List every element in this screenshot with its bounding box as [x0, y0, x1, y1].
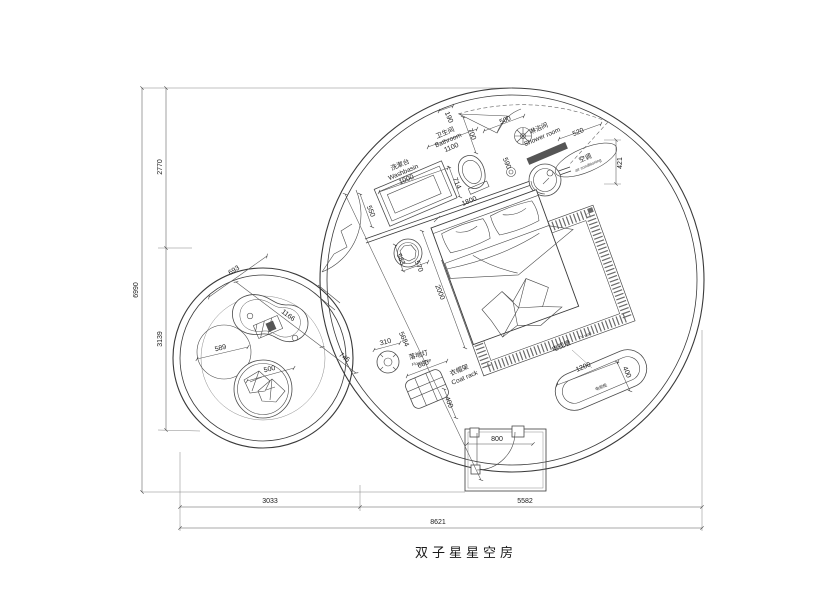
dim-round-rug: 589 [214, 344, 227, 354]
dim-width-left: 3033 [262, 498, 278, 505]
dim-overall-width: 8621 [430, 519, 446, 526]
floor-lamp [377, 351, 399, 373]
coat-rack-label: 衣帽架 Coat rack [446, 359, 479, 387]
bathroom-label: 卫生间 Bathroom 1100 [430, 123, 466, 157]
dim-bed-length: 2000 [433, 284, 445, 301]
toilet [454, 151, 491, 195]
dim-rack-depth: 400 [443, 396, 454, 410]
coat-rack [404, 368, 451, 410]
kidney-table [232, 295, 308, 342]
dim-ac-depth: 421 [617, 157, 624, 169]
floor-plan-page: 电视柜 [0, 0, 837, 592]
dim-bath-offset: 190 [443, 111, 454, 125]
dim-drain: 590 [501, 157, 512, 171]
drawing-title: 双子星星空房 [415, 545, 517, 560]
dim-shower-width: 500 [499, 115, 513, 126]
lounge-room [173, 268, 353, 448]
dim-height-upper: 2770 [157, 159, 164, 175]
dim-overall-height: 6990 [133, 282, 140, 298]
dim-stool-b: 570 [413, 260, 424, 274]
shower-partition [526, 142, 567, 165]
dim-ac-width: 520 [572, 127, 586, 138]
dim-table-a: 693 [227, 265, 241, 277]
tv-cabinet: 电视柜 [549, 344, 652, 416]
dim-lamp: 310 [379, 338, 392, 348]
dim-height-lower: 3139 [157, 331, 164, 347]
dim-width-right: 5582 [517, 498, 533, 505]
dim-room-diagonal: 5684 [397, 331, 410, 348]
ac-label: 空调 air conditioning [551, 136, 621, 184]
shower-label: 淋浴间 Shower room [519, 116, 562, 148]
entry-vestibule [465, 426, 546, 491]
floor-plan-drawing: 电视柜 [0, 0, 837, 592]
dim-bed-width: 1800 [461, 195, 478, 208]
dim-table-c: 745 [337, 351, 351, 364]
dim-entry-door: 800 [491, 436, 503, 443]
